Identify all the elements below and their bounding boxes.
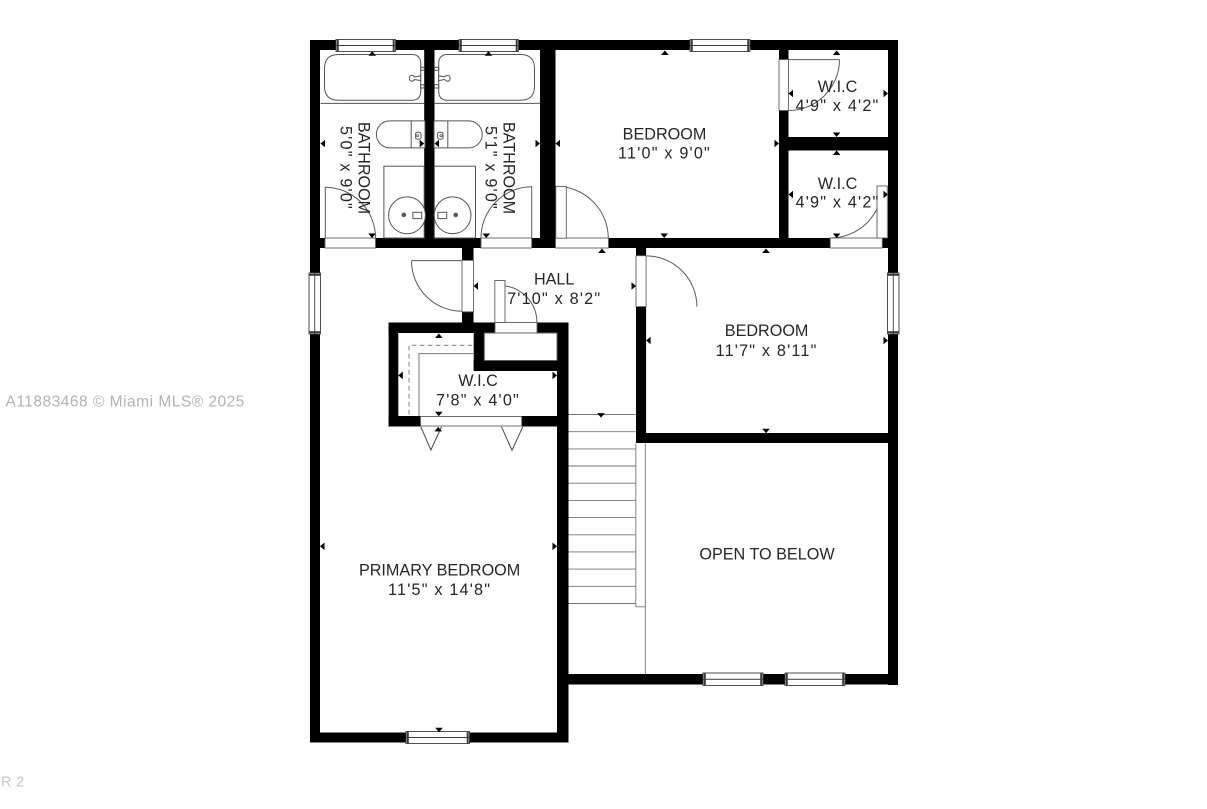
svg-text:W.I.C: W.I.C [818, 78, 858, 96]
svg-text:4'9" x 4'2": 4'9" x 4'2" [796, 193, 880, 211]
svg-text:OPEN TO BELOW: OPEN TO BELOW [699, 545, 835, 563]
svg-text:7'10" x 8'2": 7'10" x 8'2" [507, 290, 601, 308]
svg-text:HALL: HALL [534, 270, 575, 288]
svg-text:PRIMARY BEDROOM: PRIMARY BEDROOM [359, 562, 520, 580]
svg-text:FLOOR 2: FLOOR 2 [0, 775, 24, 791]
svg-text:A11883468 © Miami MLS® 2025: A11883468 © Miami MLS® 2025 [6, 394, 245, 411]
svg-text:4'9" x 4'2": 4'9" x 4'2" [796, 97, 880, 115]
svg-text:11'5" x 14'8": 11'5" x 14'8" [388, 581, 491, 599]
svg-text:W.I.C: W.I.C [458, 372, 498, 390]
svg-text:BATHROOM: BATHROOM [500, 122, 518, 214]
svg-text:BEDROOM: BEDROOM [623, 125, 707, 143]
svg-text:W.I.C: W.I.C [818, 175, 858, 193]
svg-text:7'8" x 4'0": 7'8" x 4'0" [436, 391, 520, 409]
svg-text:5'0" x 9'0": 5'0" x 9'0" [336, 126, 354, 210]
svg-text:11'7" x 8'11": 11'7" x 8'11" [716, 342, 818, 360]
svg-text:BEDROOM: BEDROOM [725, 322, 809, 340]
svg-text:BATHROOM: BATHROOM [355, 122, 373, 214]
svg-text:11'0" x 9'0": 11'0" x 9'0" [618, 145, 711, 163]
svg-text:5'1" x 9'0": 5'1" x 9'0" [481, 126, 499, 210]
